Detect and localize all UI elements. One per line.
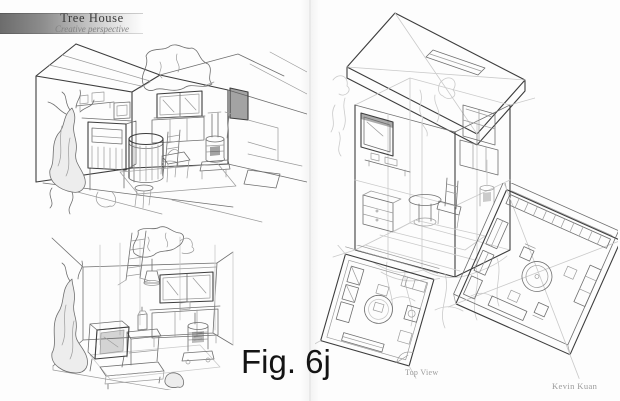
branch-through-roof — [140, 45, 214, 91]
top-view-label: Top View — [405, 368, 438, 377]
artist-signature: Kevin Kuan — [552, 381, 597, 391]
interior-shelf — [365, 153, 410, 176]
axo-cabinets — [463, 218, 508, 299]
sketch-interior-loose — [30, 225, 245, 390]
sketch-top-view-plan — [315, 245, 440, 385]
axo-desk — [488, 296, 527, 321]
page-title: Tree House — [26, 12, 158, 24]
bench — [100, 362, 164, 389]
boot-blob — [165, 373, 184, 388]
sketch-interior-main — [22, 42, 307, 232]
tree-trunk — [48, 90, 116, 214]
figure-caption: Fig. 6j — [241, 344, 331, 380]
interior-table — [409, 195, 441, 227]
wall-shelf — [76, 92, 114, 111]
faint-tree-behind — [331, 76, 349, 156]
construction-lines — [448, 183, 618, 379]
branch-blob — [133, 227, 194, 258]
sideboard — [150, 302, 220, 347]
sideboard — [152, 117, 204, 143]
room-structure — [36, 44, 307, 222]
axo-wall-unit — [574, 265, 601, 306]
plan-group — [315, 245, 440, 379]
plan-bench — [342, 333, 385, 352]
wood-stove — [182, 313, 214, 364]
plan-table — [361, 292, 396, 327]
axo-table — [517, 257, 557, 297]
roof-slab — [347, 13, 525, 145]
axo-shelf — [506, 191, 612, 249]
page-fold-line — [309, 0, 311, 401]
interior-window — [460, 105, 498, 175]
cabinet-hutch — [82, 118, 136, 190]
plan-stool — [376, 284, 389, 296]
page-subtitle: Creative perspective — [26, 25, 158, 34]
interior-cabinet — [363, 191, 401, 232]
round-table — [129, 134, 163, 183]
wood-stove — [200, 112, 232, 179]
scanned-page-spread: Tree House Creative perspective Fig. 6j … — [0, 0, 620, 401]
plan-cabinets — [336, 266, 364, 322]
tree-trunk — [52, 261, 88, 373]
axo-chairs — [500, 244, 578, 324]
rug — [120, 164, 236, 194]
plan-counter — [401, 276, 427, 292]
back-window — [154, 91, 205, 118]
tv-cabinet — [88, 321, 129, 371]
sketch-axonometric — [448, 183, 618, 383]
axo-group — [448, 183, 618, 379]
picture-frame — [114, 102, 130, 119]
back-window — [157, 267, 216, 303]
hanging-lamp — [144, 259, 160, 286]
